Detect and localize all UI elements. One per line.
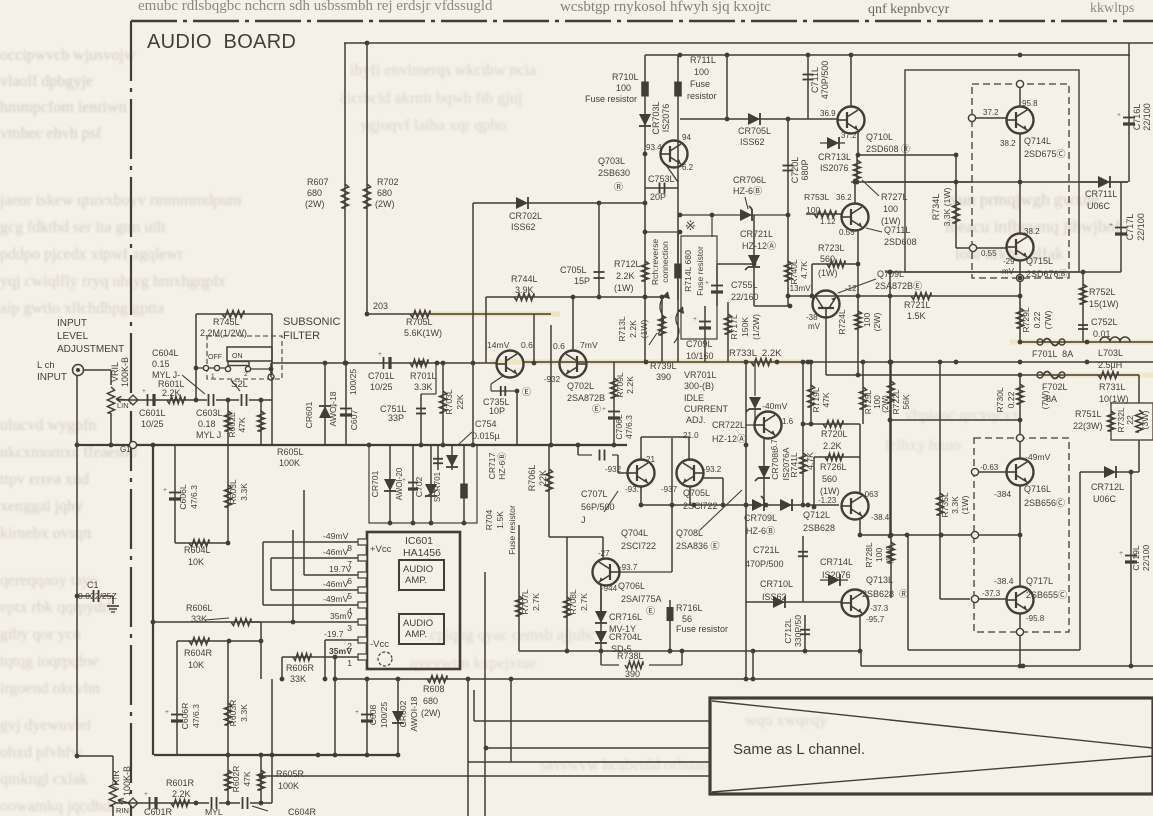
svg-text:R703L: R703L	[444, 389, 454, 415]
svg-text:R751L: R751L	[1075, 409, 1102, 419]
svg-text:CR709L: CR709L	[744, 513, 777, 523]
svg-text:HZ-6Ⓑ: HZ-6Ⓑ	[733, 186, 762, 196]
svg-text:IS2076: IS2076	[661, 104, 671, 133]
svg-text:0.022/25Z: 0.022/25Z	[78, 591, 117, 601]
svg-text:(2W): (2W)	[375, 199, 395, 209]
svg-text:Q717L: Q717L	[1026, 576, 1053, 586]
svg-text:10/25: 10/25	[141, 419, 164, 429]
svg-text:2.2K: 2.2K	[628, 320, 638, 338]
svg-text:100K: 100K	[279, 458, 300, 468]
svg-text:-95.8: -95.8	[1026, 614, 1045, 623]
svg-text:0.15: 0.15	[152, 359, 170, 369]
svg-text:AMP.: AMP.	[405, 629, 427, 640]
svg-text:CR701: CR701	[370, 470, 380, 497]
svg-text:Fuse resistor: Fuse resistor	[507, 505, 517, 555]
svg-text:R701L: R701L	[410, 371, 437, 381]
svg-text:R735L: R735L	[940, 492, 950, 518]
svg-text:ulucvd wygpfn: ulucvd wygpfn	[0, 417, 96, 434]
svg-text:15P: 15P	[574, 276, 590, 286]
svg-text:Fuse: Fuse	[690, 79, 710, 89]
svg-text:R605L: R605L	[277, 447, 304, 457]
svg-text:VRIR: VRIR	[111, 770, 121, 792]
svg-text:IC601: IC601	[405, 535, 433, 547]
svg-text:100/25: 100/25	[348, 369, 358, 396]
svg-text:OFF: OFF	[208, 354, 222, 361]
svg-text:100K-B: 100K-B	[122, 766, 132, 796]
svg-text:C707L: C707L	[581, 489, 608, 499]
svg-text:100K-B: 100K-B	[120, 357, 130, 387]
svg-text:qnf kepnbvcyr: qnf kepnbvcyr	[868, 2, 950, 17]
svg-text:CR703L: CR703L	[651, 101, 661, 134]
svg-text:R604L: R604L	[184, 545, 211, 555]
svg-text:22/100: 22/100	[1141, 545, 1151, 572]
svg-text:100: 100	[883, 204, 898, 214]
svg-text:AWOI-18: AWOI-18	[328, 391, 338, 426]
svg-text:38.2: 38.2	[1024, 227, 1040, 236]
svg-text:2.7K: 2.7K	[579, 593, 589, 611]
svg-text:C606L: C606L	[178, 484, 188, 510]
svg-text:2: 2	[244, 371, 248, 378]
svg-text:(7W): (7W)	[1043, 311, 1053, 330]
svg-text:icihxy hxuo: icihxy hxuo	[885, 437, 961, 454]
svg-text:IS2076: IS2076	[820, 163, 849, 173]
svg-text:21.0: 21.0	[683, 431, 699, 440]
svg-text:22/100: 22/100	[1142, 103, 1152, 131]
svg-text:qmkngl cxlak: qmkngl cxlak	[0, 771, 88, 788]
svg-text:Fuse resistor: Fuse resistor	[695, 246, 705, 296]
svg-text:-1.23: -1.23	[818, 496, 837, 505]
svg-text:SUBSONIC: SUBSONIC	[283, 316, 341, 328]
svg-text:R608: R608	[423, 684, 445, 694]
svg-text:ibyfi envimerqs wkcibw ncia: ibyfi envimerqs wkcibw ncia	[350, 62, 536, 79]
svg-text:MYL: MYL	[205, 807, 223, 816]
svg-text:+: +	[1117, 111, 1121, 119]
svg-text:CR716L: CR716L	[609, 612, 642, 622]
svg-text:C601L: C601L	[139, 408, 166, 418]
svg-text:(1W): (1W)	[614, 283, 634, 293]
svg-text:R726L: R726L	[820, 462, 847, 472]
svg-text:CR708L: CR708L	[770, 448, 780, 480]
svg-text:0.22: 0.22	[1032, 311, 1042, 328]
svg-text:ISS62: ISS62	[511, 222, 536, 232]
svg-text:(1W): (1W)	[818, 268, 838, 278]
svg-text:15(1W): 15(1W)	[1089, 299, 1119, 309]
svg-text:Ⓔ: Ⓔ	[592, 404, 601, 414]
svg-text:22(3W): 22(3W)	[1073, 421, 1103, 431]
svg-text:-19.7: -19.7	[324, 629, 344, 639]
svg-text:aip gwtlo xllchdhpg gptta: aip gwtlo xllchdhpg gptta	[0, 300, 164, 317]
svg-text:56: 56	[682, 614, 692, 624]
svg-text:(1W): (1W)	[639, 320, 649, 339]
svg-text:HZ-12Ⓐ: HZ-12Ⓐ	[742, 241, 776, 251]
svg-text:C604L: C604L	[152, 348, 179, 358]
svg-text:19.7V: 19.7V	[329, 564, 352, 574]
svg-text:MYL J: MYL J	[196, 430, 221, 440]
svg-text:C705L: C705L	[560, 265, 587, 275]
svg-text:C701L: C701L	[368, 371, 395, 381]
svg-text:C711L: C711L	[810, 67, 820, 93]
svg-text:+: +	[144, 790, 148, 798]
svg-text:35mV: 35mV	[329, 646, 352, 656]
svg-text:AMP.: AMP.	[405, 575, 427, 586]
svg-text:CR722L: CR722L	[712, 420, 745, 430]
svg-text:+Vcc: +Vcc	[370, 544, 392, 555]
svg-text:emubc rdlsbqgbc nchcrn sdh usb: emubc rdlsbqgbc nchcrn sdh usbssmbh rej …	[138, 0, 493, 14]
svg-text:wqu xwqeqy: wqu xwqeqy	[745, 712, 827, 729]
svg-text:R602R: R602R	[231, 766, 241, 793]
svg-text:tqtqg ioqrpqhw: tqtqg ioqrpqhw	[0, 653, 99, 670]
svg-text:R733L 2.2K: R733L 2.2K	[729, 348, 782, 359]
svg-text:-37.3: -37.3	[982, 589, 1001, 598]
svg-text:Ⓡ: Ⓡ	[614, 182, 623, 192]
svg-text:Ⓔ: Ⓔ	[646, 606, 655, 616]
svg-text:37.2: 37.2	[841, 131, 857, 140]
svg-text:savswvw hcabeuld orbuau: savswvw hcabeuld orbuau	[540, 757, 709, 774]
svg-text:33K: 33K	[191, 614, 207, 624]
svg-text:(7W): (7W)	[1040, 391, 1050, 410]
svg-text:Q706L: Q706L	[618, 581, 645, 591]
svg-text:CR712L: CR712L	[1091, 482, 1124, 492]
svg-text:100: 100	[862, 313, 872, 328]
svg-text:Q713L: Q713L	[866, 575, 893, 585]
svg-text:F701L 8A: F701L 8A	[1032, 349, 1073, 359]
svg-text:HA1456: HA1456	[403, 547, 441, 559]
svg-text:Q710L: Q710L	[866, 132, 893, 142]
svg-text:mV: mV	[808, 322, 821, 331]
svg-text:hmmpcfom ienriwn: hmmpcfom ienriwn	[0, 99, 127, 116]
svg-text:22/160: 22/160	[731, 292, 759, 302]
svg-text:47K: 47K	[242, 771, 252, 787]
svg-text:20P: 20P	[650, 192, 666, 202]
svg-text:CURRENT: CURRENT	[684, 404, 729, 414]
svg-text:-49mV: -49mV	[1025, 452, 1051, 462]
svg-text:7mV: 7mV	[580, 340, 598, 350]
svg-text:-49mV: -49mV	[323, 594, 349, 604]
svg-text:-93.7: -93.7	[619, 563, 638, 572]
svg-text:CR706L: CR706L	[733, 175, 766, 185]
svg-text:C702: C702	[414, 477, 424, 498]
svg-text:0.015µ: 0.015µ	[472, 431, 500, 441]
svg-text:L703L: L703L	[1098, 348, 1123, 358]
svg-text:(2W): (2W)	[421, 708, 441, 718]
svg-text:R730L: R730L	[995, 387, 1005, 413]
svg-text:1: 1	[211, 373, 215, 380]
svg-text:C753L: C753L	[648, 174, 675, 184]
svg-text:+: +	[1109, 221, 1113, 229]
svg-text:-37.3: -37.3	[870, 604, 889, 613]
svg-text:-40mV: -40mV	[762, 401, 788, 411]
svg-text:36.2: 36.2	[836, 193, 852, 202]
svg-text:R601R: R601R	[166, 778, 195, 788]
svg-text:VRIL: VRIL	[110, 362, 120, 382]
svg-text:4.7K: 4.7K	[799, 261, 809, 279]
svg-text:95.8: 95.8	[1022, 99, 1038, 108]
svg-text:AUDIO: AUDIO	[403, 564, 433, 575]
svg-text:-95,7: -95,7	[866, 615, 885, 624]
svg-text:100: 100	[616, 83, 631, 93]
svg-text:-384: -384	[994, 489, 1011, 499]
svg-text:2SD608 Ⓡ: 2SD608 Ⓡ	[866, 144, 910, 154]
svg-text:R728L: R728L	[864, 542, 874, 568]
svg-text:Q703L: Q703L	[598, 156, 625, 166]
svg-text:IS2076: IS2076	[822, 570, 851, 580]
svg-text:INPUT: INPUT	[57, 318, 87, 329]
svg-text:10/25: 10/25	[370, 382, 393, 392]
svg-text:CR714L: CR714L	[820, 557, 853, 567]
svg-text:33P: 33P	[388, 413, 404, 423]
svg-text:R734L: R734L	[931, 194, 941, 221]
svg-text:R603L: R603L	[228, 479, 238, 505]
svg-text:(2W): (2W)	[872, 313, 882, 332]
svg-text:Q711L: Q711L	[884, 225, 910, 235]
svg-text:HZ-12Ⓐ: HZ-12Ⓐ	[712, 434, 746, 444]
svg-text:470P/500: 470P/500	[745, 559, 784, 569]
svg-text:C719L: C719L	[1131, 545, 1141, 571]
svg-text:C604R: C604R	[288, 807, 317, 816]
svg-text:C717L: C717L	[1125, 214, 1135, 241]
svg-text:F702L: F702L	[1042, 382, 1068, 392]
svg-text:14mV: 14mV	[487, 340, 510, 350]
svg-text:10K: 10K	[188, 557, 204, 567]
svg-text:-49mV: -49mV	[323, 531, 349, 541]
svg-text:0.55: 0.55	[981, 249, 997, 258]
svg-text:R724L: R724L	[837, 309, 847, 335]
svg-text:ISS62: ISS62	[762, 592, 787, 602]
svg-text:1.5K: 1.5K	[495, 511, 505, 529]
svg-text:R711L: R711L	[690, 55, 716, 65]
svg-text:R709L: R709L	[615, 372, 625, 398]
svg-text:R723L: R723L	[818, 243, 845, 253]
svg-text:R731L: R731L	[1099, 382, 1126, 392]
svg-text:3.9K: 3.9K	[515, 285, 534, 295]
svg-text:R605R: R605R	[276, 769, 305, 779]
svg-text:gcg fdktbd ser lta gtm uilt: gcg fdktbd ser lta gtm uilt	[0, 219, 166, 236]
svg-text:33K: 33K	[290, 674, 306, 684]
svg-text:+: +	[355, 708, 359, 716]
svg-text:R702: R702	[377, 177, 399, 187]
svg-text:C755L: C755L	[731, 280, 758, 290]
svg-text:2SCl722: 2SCl722	[683, 501, 718, 511]
svg-text:qereqqaoy taye: qereqqaoy taye	[0, 572, 97, 589]
svg-text:5.6K(1W): 5.6K(1W)	[404, 328, 442, 338]
svg-text:oowamkq jqcdhdc: oowamkq jqcdhdc	[0, 798, 118, 815]
svg-text:IDLE: IDLE	[684, 393, 704, 403]
svg-text:vmhec ehvh psf: vmhec ehvh psf	[0, 125, 102, 142]
svg-text:gvj dyewuvlei: gvj dyewuvlei	[0, 717, 92, 734]
svg-text:470P/500: 470P/500	[820, 61, 830, 100]
svg-text:(2W): (2W)	[305, 199, 325, 209]
svg-text:CR713L: CR713L	[818, 152, 851, 162]
svg-text:2.2K: 2.2K	[616, 271, 635, 281]
svg-text:-063: -063	[862, 490, 879, 499]
svg-text:47K: 47K	[821, 392, 831, 408]
svg-text:-46mV: -46mV	[323, 579, 349, 589]
svg-text:C709L: C709L	[686, 339, 713, 349]
svg-text:36.9: 36.9	[820, 109, 836, 118]
svg-text:2.7K: 2.7K	[531, 593, 541, 611]
svg-text:ON: ON	[232, 353, 243, 360]
svg-text:※: ※	[685, 218, 696, 233]
svg-text:R712L: R712L	[614, 259, 641, 269]
svg-text:203: 203	[373, 301, 388, 311]
svg-text:ygjoqvf laiba xqr qpho: ygjoqvf laiba xqr qpho	[360, 117, 506, 134]
svg-text:-932: -932	[544, 375, 561, 384]
svg-text:2SA872BⒺ: 2SA872BⒺ	[875, 281, 922, 291]
svg-text:connection: connection	[660, 241, 670, 283]
svg-text:2SA836 Ⓔ: 2SA836 Ⓔ	[676, 541, 720, 551]
svg-text:2SD676Ⓑ: 2SD676Ⓑ	[1026, 269, 1068, 279]
svg-text:-46mV: -46mV	[323, 547, 349, 557]
svg-text:R607: R607	[307, 177, 329, 187]
svg-text:+: +	[165, 708, 169, 716]
svg-text:3: 3	[347, 623, 352, 633]
svg-text:2SD608: 2SD608	[884, 237, 917, 247]
svg-text:-93.2: -93.2	[703, 465, 722, 474]
svg-text:-944: -944	[601, 584, 618, 593]
svg-text:VR701L: VR701L	[684, 370, 717, 380]
svg-text:22K: 22K	[538, 470, 548, 486]
svg-text:+: +	[163, 486, 167, 494]
svg-text:R717L: R717L	[729, 314, 739, 340]
svg-text:R740L: R740L	[789, 259, 799, 285]
svg-text:94: 94	[682, 133, 691, 142]
svg-text:CR702L: CR702L	[509, 211, 542, 221]
svg-text:resistor: resistor	[687, 91, 717, 101]
svg-text:2SAI775A: 2SAI775A	[621, 594, 662, 604]
svg-text:C712L: C712L	[783, 618, 793, 644]
svg-text:R706L: R706L	[527, 465, 537, 492]
svg-text:C721L: C721L	[753, 545, 780, 555]
svg-text:R738L: R738L	[617, 651, 644, 661]
svg-text:-Vcc: -Vcc	[370, 639, 389, 650]
svg-text:Q705L: Q705L	[683, 488, 710, 498]
svg-text:-932: -932	[605, 465, 622, 474]
svg-text:R753L: R753L	[804, 192, 830, 202]
svg-text:2.2K: 2.2K	[162, 388, 181, 398]
svg-text:(1W): (1W)	[820, 486, 840, 496]
svg-text:560: 560	[822, 474, 837, 484]
svg-text:0.6: 0.6	[521, 340, 533, 350]
svg-text:2.2K: 2.2K	[625, 376, 635, 394]
svg-text:-0.63: -0.63	[980, 463, 999, 472]
svg-text:21: 21	[646, 455, 655, 464]
svg-text:R720L: R720L	[821, 429, 848, 439]
svg-text:R722L: R722L	[891, 389, 901, 415]
svg-text:-29: -29	[1003, 257, 1015, 266]
svg-text:-13mV: -13mV	[787, 284, 811, 293]
svg-text:0.6: 0.6	[553, 341, 565, 351]
svg-text:330P/50: 330P/50	[793, 615, 803, 647]
svg-text:LIN: LIN	[117, 401, 129, 410]
svg-text:+: +	[378, 350, 382, 358]
svg-text:-38: -38	[806, 313, 818, 322]
svg-text:irgoend okcvhn: irgoend okcvhn	[0, 680, 100, 697]
svg-text:C606R: C606R	[180, 703, 190, 730]
svg-text:2SB656Ⓒ: 2SB656Ⓒ	[1024, 498, 1065, 508]
svg-text:Q708L: Q708L	[676, 528, 703, 538]
svg-text:U06C: U06C	[1093, 494, 1117, 504]
svg-text:R744L: R744L	[511, 274, 538, 284]
svg-text:0.18: 0.18	[198, 419, 216, 429]
svg-text:390: 390	[625, 669, 640, 679]
svg-text:2SB628: 2SB628	[803, 523, 835, 533]
svg-text:CR711L: CR711L	[1085, 189, 1117, 199]
svg-text:R729L: R729L	[1021, 307, 1031, 333]
svg-text:2SB628 Ⓡ: 2SB628 Ⓡ	[862, 589, 908, 599]
svg-text:3.3K: 3.3K	[950, 496, 960, 514]
svg-text:47K: 47K	[237, 417, 247, 433]
svg-text:37.2: 37.2	[983, 108, 999, 117]
svg-text:C607: C607	[349, 410, 359, 431]
svg-text:R714L 680: R714L 680	[683, 250, 693, 292]
svg-text:Q704L: Q704L	[621, 528, 648, 538]
svg-text:6.2: 6.2	[682, 163, 694, 172]
svg-text:680: 680	[423, 696, 438, 706]
svg-text:+: +	[1119, 549, 1123, 557]
svg-text:R725L: R725L	[864, 389, 873, 414]
svg-text:R745L: R745L	[213, 317, 240, 327]
svg-text:Q716L: Q716L	[1024, 484, 1051, 494]
svg-text:+: +	[705, 279, 709, 287]
svg-text:HZ-6Ⓑ: HZ-6Ⓑ	[497, 452, 507, 480]
svg-text:CR704L: CR704L	[609, 632, 642, 642]
svg-text:-38.4: -38.4	[994, 576, 1014, 586]
svg-text:R713L: R713L	[617, 316, 627, 342]
svg-text:R739L: R739L	[650, 361, 677, 371]
svg-text:35mV: 35mV	[330, 611, 353, 621]
svg-text:CR601: CR601	[304, 401, 314, 428]
svg-text:56K: 56K	[901, 394, 911, 410]
svg-text:680: 680	[307, 188, 322, 198]
svg-text:47/6.3: 47/6.3	[624, 415, 634, 439]
svg-text:occipwvcb wjusvojw: occipwvcb wjusvojw	[0, 47, 136, 64]
svg-text:R719L: R719L	[811, 387, 821, 413]
svg-text:wcsbtgp rnykosol hfwyh sjq kxo: wcsbtgp rnykosol hfwyh sjq kxojtc	[560, 0, 771, 15]
svg-text:R716L: R716L	[676, 603, 703, 613]
svg-text:10/160: 10/160	[686, 351, 714, 361]
svg-text:R704: R704	[484, 510, 494, 531]
svg-text:10P: 10P	[489, 406, 505, 416]
svg-text:560: 560	[820, 254, 835, 264]
svg-text:47/6.3: 47/6.3	[189, 485, 199, 509]
svg-text:Ⓔ: Ⓔ	[522, 387, 531, 397]
svg-text:47/6.3: 47/6.3	[191, 704, 201, 728]
svg-text:2.2K: 2.2K	[172, 789, 191, 799]
svg-text:AWOI-18: AWOI-18	[409, 696, 419, 731]
svg-text:3.3K: 3.3K	[239, 483, 249, 501]
svg-text:C601R: C601R	[144, 807, 173, 816]
svg-text:CR602: CR602	[398, 700, 408, 727]
svg-text:C1: C1	[87, 580, 99, 590]
svg-text:ttpv errea xud: ttpv errea xud	[0, 471, 89, 488]
svg-text:cpiqug qyac cemsb ajjuhc: cpiqug qyac cemsb ajjuhc	[430, 627, 596, 644]
svg-text:C603L: C603L	[196, 408, 223, 418]
svg-text:100/25: 100/25	[379, 702, 389, 729]
svg-text:R606L: R606L	[186, 603, 213, 613]
svg-text:Fuse resistor: Fuse resistor	[676, 624, 728, 634]
svg-text:CR705L: CR705L	[738, 126, 771, 136]
svg-text:100: 100	[694, 67, 709, 77]
svg-text:300-(B): 300-(B)	[684, 381, 714, 391]
svg-text:Q709L: Q709L	[877, 269, 904, 279]
svg-text:(3W): (3W)	[1140, 411, 1150, 430]
svg-text:10K: 10K	[188, 660, 204, 670]
svg-text:C706L: C706L	[614, 414, 624, 440]
svg-text:680P: 680P	[800, 159, 810, 180]
svg-text:-12: -12	[845, 284, 857, 293]
svg-text:HZ-6Ⓑ: HZ-6Ⓑ	[746, 526, 775, 536]
svg-text:2SB655Ⓒ: 2SB655Ⓒ	[1026, 590, 1067, 600]
